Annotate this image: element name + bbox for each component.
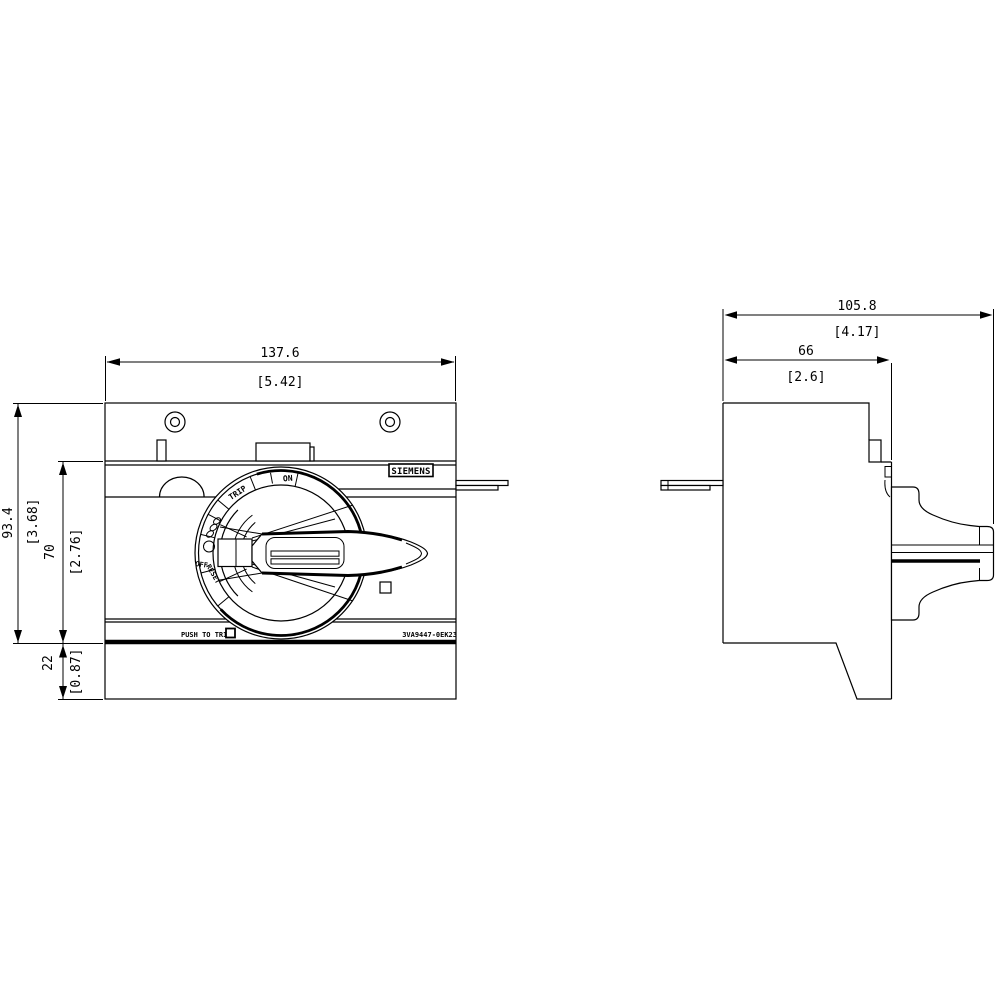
interlock-bar-front: [456, 481, 508, 491]
side-top-tab: [869, 440, 881, 462]
front-mid-height-mm-label: 70: [43, 544, 58, 560]
front-base-height-in-label: [0.87]: [69, 649, 84, 696]
dim-side-body-depth: 66 [2.6]: [725, 344, 892, 460]
dim-side-total-depth: 105.8 [4.17]: [723, 299, 994, 524]
part-number-label: 3VA9447-0EK23: [402, 631, 457, 639]
dim-front-mid-height: 70 [2.76]: [43, 462, 103, 644]
push-to-trip-button-icon: [226, 629, 235, 638]
side-handle-hub: [892, 487, 994, 620]
dim-front-base-height: 22 [0.87]: [41, 644, 103, 700]
plate-slot: [157, 440, 166, 461]
front-height-mm-label: 93.4: [1, 507, 16, 538]
front-view: 137.6 [5.42] 93.4 [3.68] 70 [2.76] 22 [0…: [1, 346, 508, 700]
side-total-depth-in-label: [4.17]: [834, 325, 881, 340]
dim-arrow-right: [441, 358, 455, 366]
technical-drawing: 137.6 [5.42] 93.4 [3.68] 70 [2.76] 22 [0…: [0, 0, 1000, 1000]
side-total-depth-mm-label: 105.8: [837, 299, 876, 314]
dim-front-width: 137.6 [5.42]: [106, 346, 456, 401]
rotary-dial: TRIP ON OFF RESET: [195, 467, 428, 639]
brand-badge: SIEMENS: [389, 464, 433, 477]
front-height-in-label: [3.68]: [26, 499, 41, 546]
technical-drawing-page: 137.6 [5.42] 93.4 [3.68] 70 [2.76] 22 [0…: [0, 0, 1000, 1000]
screw-hole-icon-right: [380, 412, 400, 432]
dim-arrow-left: [107, 358, 121, 366]
dim-front-height: 93.4 [3.68]: [1, 404, 103, 644]
handle-pivot-block: [218, 539, 252, 567]
side-body-depth-mm-label: 66: [798, 344, 814, 359]
front-mid-height-in-label: [2.76]: [69, 529, 84, 576]
interlock-bar-side: [661, 481, 723, 491]
plate-small-square: [380, 582, 391, 593]
side-body-profile: [661, 403, 994, 699]
plate-notch-arc: [160, 477, 205, 497]
dial-on-label: ON: [283, 474, 293, 484]
brand-label: SIEMENS: [391, 467, 430, 477]
side-body-depth-in-label: [2.6]: [786, 370, 825, 385]
screw-hole-icon-left: [165, 412, 185, 432]
push-to-trip-label: PUSH TO TRIP: [181, 631, 232, 639]
top-tab: [256, 443, 310, 461]
side-view: 105.8 [4.17] 66 [2.6]: [661, 299, 994, 699]
top-tab-sliver: [310, 447, 314, 461]
front-width-mm-label: 137.6: [260, 346, 299, 361]
front-width-in-label: [5.42]: [257, 375, 304, 390]
front-base-height-mm-label: 22: [41, 655, 56, 671]
